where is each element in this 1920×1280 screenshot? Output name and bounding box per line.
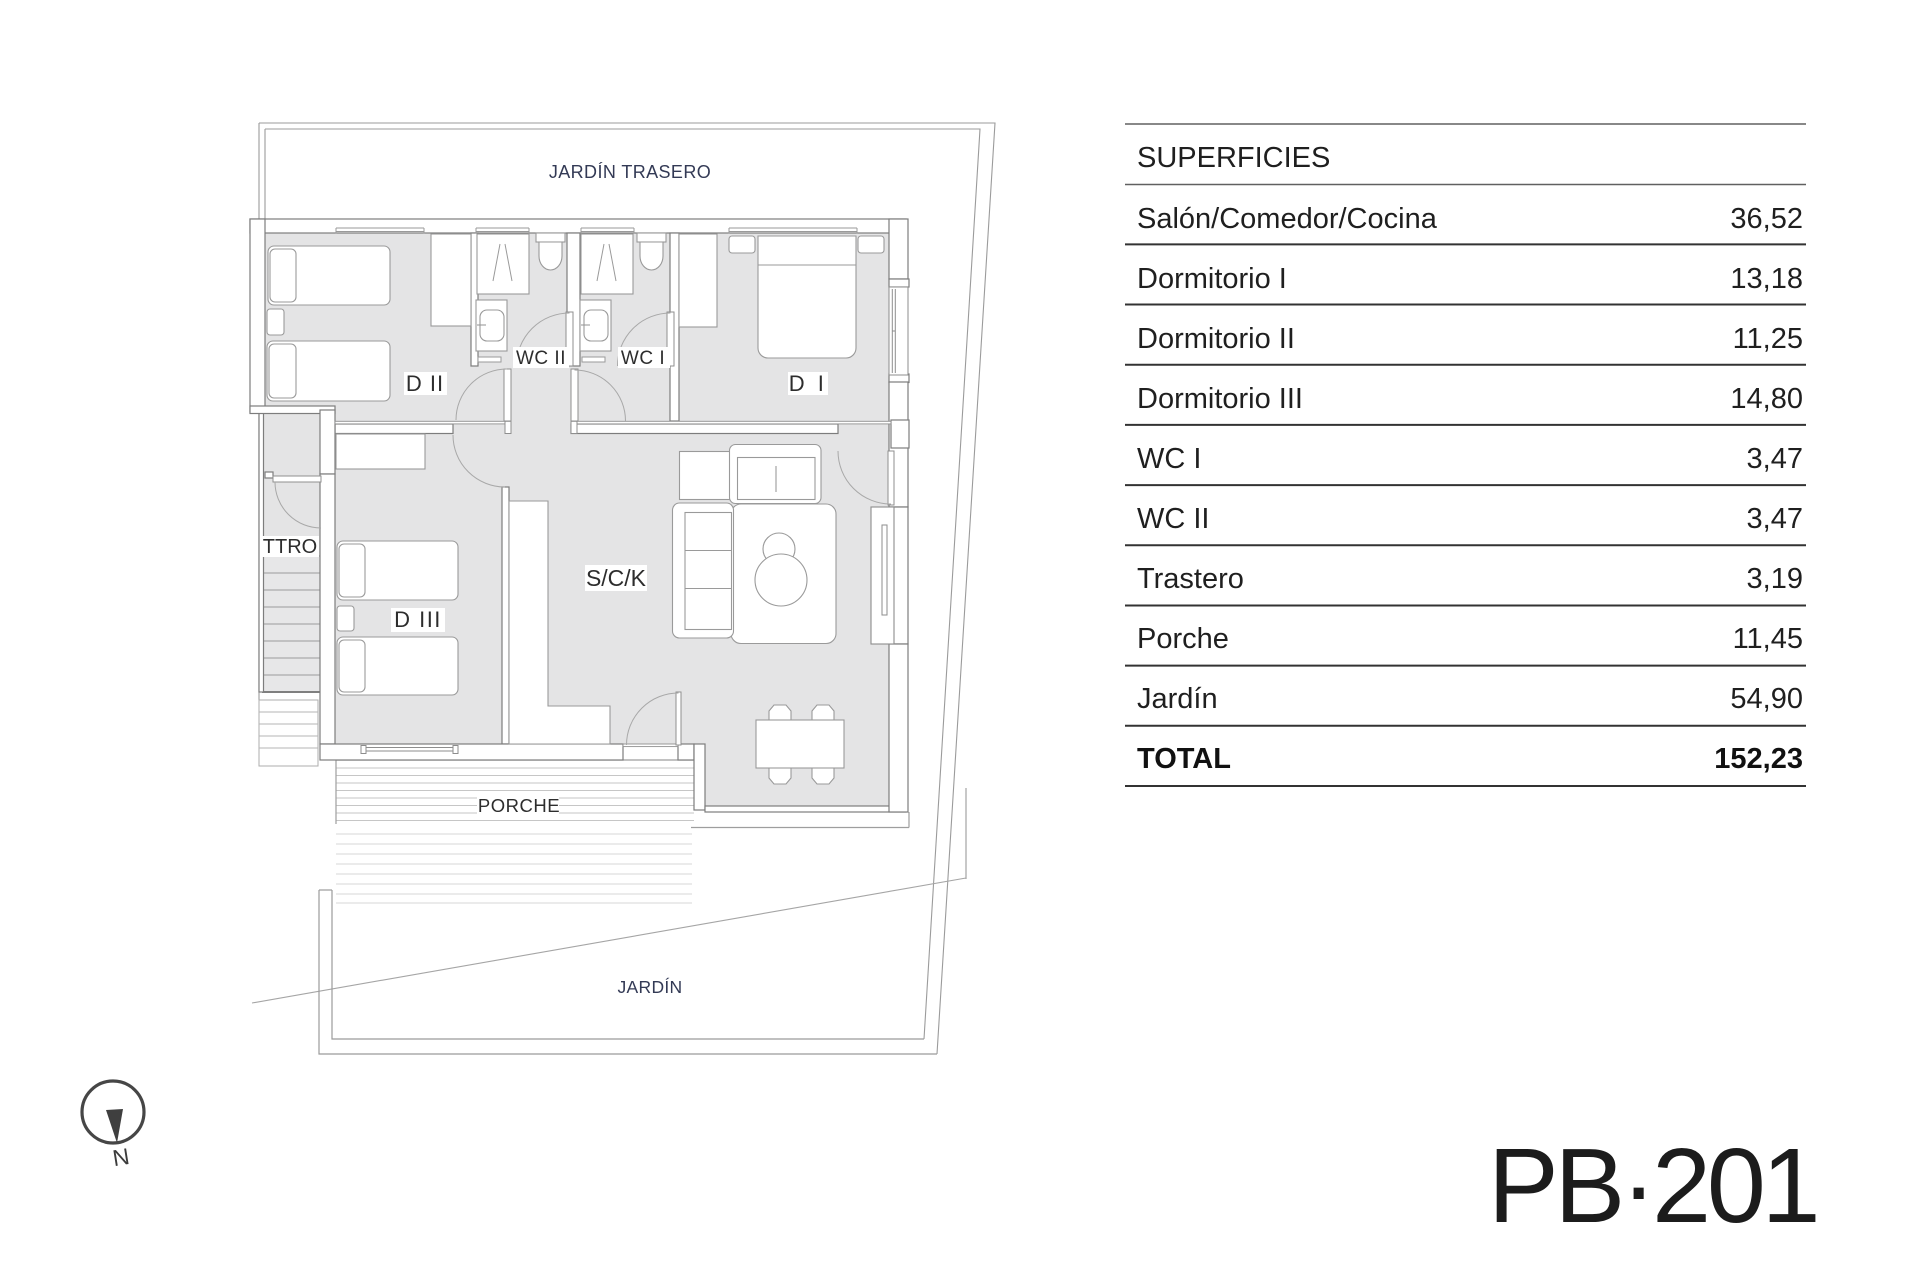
- svg-text:3,19: 3,19: [1747, 563, 1803, 595]
- svg-text:WC I: WC I: [1137, 443, 1201, 475]
- svg-text:Dormitorio II: Dormitorio II: [1137, 323, 1295, 355]
- svg-text:Dormitorio I: Dormitorio I: [1137, 263, 1287, 295]
- svg-text:Jardín: Jardín: [1137, 683, 1218, 715]
- svg-text:Salón/Comedor/Cocina: Salón/Comedor/Cocina: [1137, 203, 1438, 235]
- svg-text:TOTAL: TOTAL: [1137, 743, 1231, 775]
- svg-text:PB·201: PB·201: [1488, 1127, 1816, 1245]
- svg-text:JARDÍN TRASERO: JARDÍN TRASERO: [549, 162, 711, 182]
- svg-text:3,47: 3,47: [1747, 443, 1803, 475]
- svg-text:S/C/K: S/C/K: [586, 565, 647, 591]
- svg-text:13,18: 13,18: [1730, 263, 1803, 295]
- svg-text:Trastero: Trastero: [1137, 563, 1244, 595]
- svg-text:D III: D III: [394, 607, 442, 632]
- svg-text:WC II: WC II: [1137, 503, 1210, 535]
- svg-text:54,90: 54,90: [1730, 683, 1803, 715]
- svg-text:Dormitorio III: Dormitorio III: [1137, 383, 1303, 415]
- svg-text:11,25: 11,25: [1733, 323, 1803, 355]
- svg-text:JARDÍN: JARDÍN: [618, 977, 683, 997]
- svg-text:14,80: 14,80: [1730, 383, 1803, 415]
- svg-text:D II: D II: [406, 371, 444, 396]
- svg-text:3,47: 3,47: [1747, 503, 1803, 535]
- svg-text:152,23: 152,23: [1714, 743, 1803, 775]
- svg-text:D I: D I: [789, 371, 828, 396]
- svg-text:SUPERFICIES: SUPERFICIES: [1137, 142, 1330, 174]
- svg-text:TTRO: TTRO: [263, 536, 317, 558]
- svg-text:36,52: 36,52: [1730, 203, 1803, 235]
- svg-text:WC I: WC I: [621, 348, 665, 369]
- svg-text:PORCHE: PORCHE: [478, 795, 560, 816]
- svg-text:11,45: 11,45: [1733, 623, 1803, 655]
- svg-text:Porche: Porche: [1137, 623, 1229, 655]
- svg-text:WC II: WC II: [516, 348, 566, 369]
